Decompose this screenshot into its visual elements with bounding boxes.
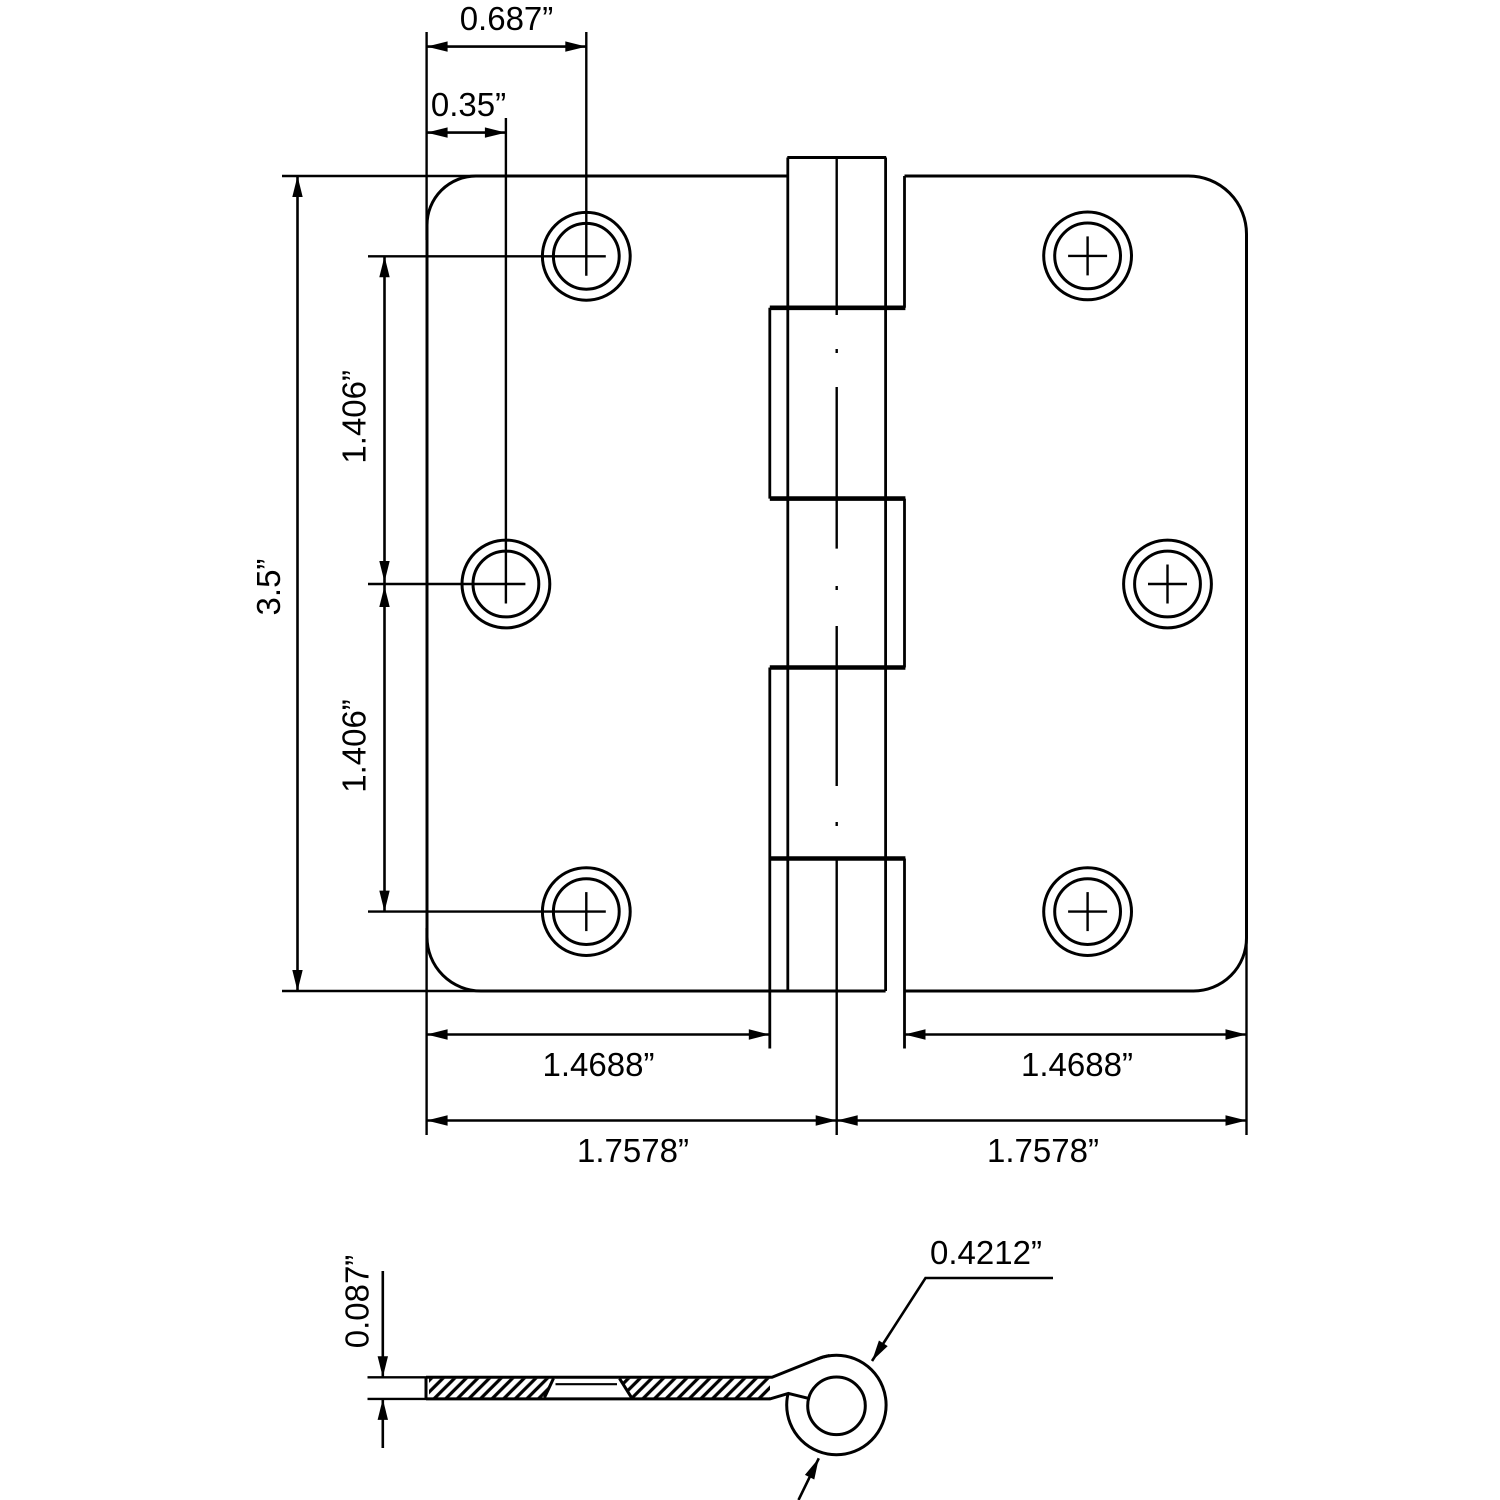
svg-text:0.35”: 0.35” [431, 86, 506, 123]
svg-text:3.5”: 3.5” [250, 559, 287, 616]
svg-text:0.4212”: 0.4212” [930, 1234, 1042, 1271]
svg-text:1.7578”: 1.7578” [577, 1132, 689, 1169]
svg-text:1.4688”: 1.4688” [1021, 1046, 1133, 1083]
svg-text:0.687”: 0.687” [460, 0, 554, 37]
svg-text:0.087”: 0.087” [339, 1255, 376, 1349]
svg-text:1.4688”: 1.4688” [543, 1046, 655, 1083]
svg-text:1.406”: 1.406” [336, 370, 373, 464]
svg-text:1.7578”: 1.7578” [987, 1132, 1099, 1169]
svg-text:1.406”: 1.406” [336, 699, 373, 793]
